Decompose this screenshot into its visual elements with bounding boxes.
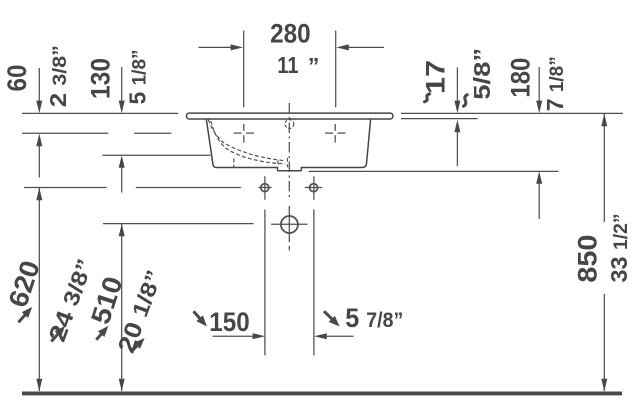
svg-text:60: 60 xyxy=(2,65,32,92)
svg-text:850: 850 xyxy=(573,235,603,283)
svg-text:280: 280 xyxy=(270,18,311,48)
svg-text:150: 150 xyxy=(209,307,249,337)
svg-text:180: 180 xyxy=(506,58,536,98)
svg-text:130: 130 xyxy=(86,58,116,99)
svg-text:17: 17 xyxy=(421,60,451,94)
svg-text:11: 11 xyxy=(277,52,298,78)
svg-text:5/8”: 5/8” xyxy=(469,48,495,100)
svg-text:”: ” xyxy=(308,53,320,79)
